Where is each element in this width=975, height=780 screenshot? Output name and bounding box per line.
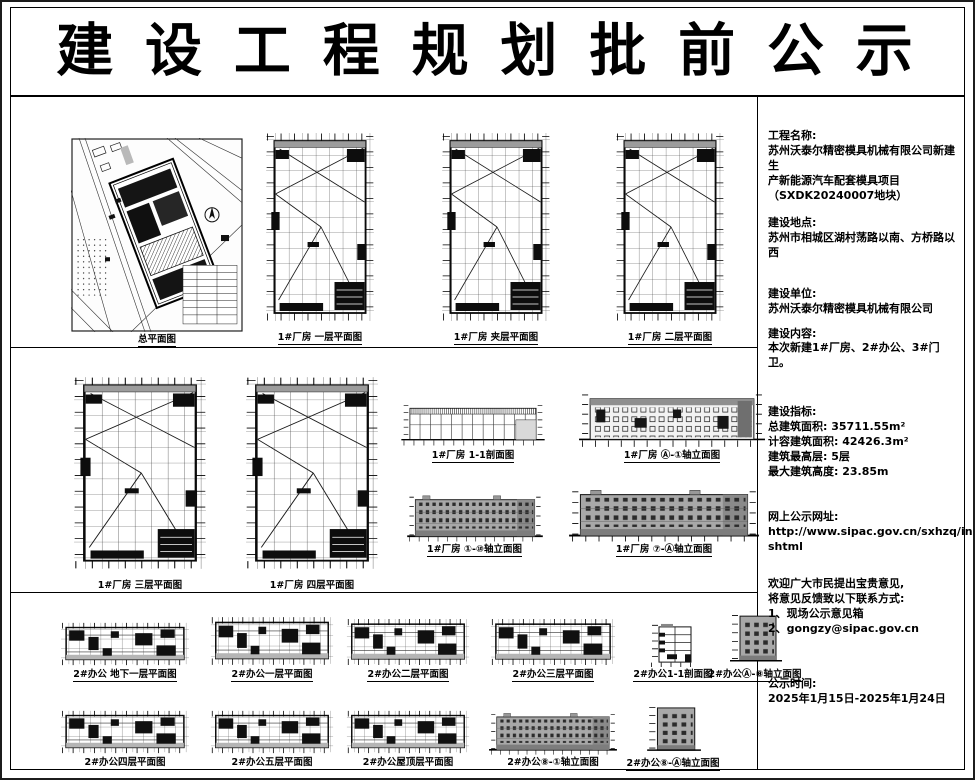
- floor-plan-graphic: [58, 708, 192, 755]
- drawing-office2-floor2-plan: 2#办公二层平面图: [342, 616, 474, 682]
- drawing-caption: 1#厂房 一层平面图: [278, 333, 362, 345]
- drawing-caption: 1#厂房 四层平面图: [270, 581, 354, 593]
- drawing-caption: 2#办公屋顶层平面图: [363, 758, 454, 770]
- info-heading: 建设地点:: [768, 216, 959, 231]
- drawing-caption: 1#厂房 二层平面图: [628, 333, 712, 345]
- drawing-caption: 2#办公1-1剖面图: [633, 670, 712, 682]
- floor-plan-graphic: [612, 124, 728, 330]
- drawing-office2-floor3-plan: 2#办公三层平面图: [486, 616, 620, 682]
- elevation-graphic: [576, 386, 768, 448]
- drawing-caption: 2#办公⑧-Ⓐ轴立面图: [626, 759, 719, 771]
- drawing-caption: 1#厂房 ⑦-Ⓐ轴立面图: [616, 545, 712, 557]
- title-band: 建 设 工 程 规 划 批 前 公 示: [10, 7, 965, 97]
- info-section-location: 建设地点: 苏州市相城区湖村荡路以南、方桥路以西: [768, 216, 959, 261]
- info-section-period: 公示时间: 2025年1月15日-2025年1月24日: [768, 677, 959, 707]
- floor-plan-graphic: [344, 708, 472, 755]
- floor-plan-graphic: [241, 368, 383, 578]
- drawing-caption: 2#办公三层平面图: [512, 670, 593, 682]
- drawing-factory1-elevation-1-10: 1#厂房 ①-⑩轴立面图: [402, 492, 547, 557]
- drawing-factory1-floor1-plan: 1#厂房 一层平面图: [258, 124, 382, 345]
- site-plan-graphic: [71, 138, 243, 332]
- drawing-caption: 总平面图: [138, 335, 176, 347]
- elevation-graphic: [643, 704, 703, 756]
- info-heading: 网上公示网址:: [768, 510, 959, 525]
- info-heading: 公示时间:: [768, 677, 959, 692]
- drawing-caption: 2#办公⑧-①轴立面图: [507, 758, 599, 770]
- drawing-office2-roof-plan: 2#办公屋顶层平面图: [342, 708, 474, 770]
- drawing-office2-floor1-plan: 2#办公一层平面图: [206, 614, 338, 682]
- info-section-project-name: 工程名称: 苏州沃泰尔精密模具机械有限公司新建生 产新能源汽车配套模具项目 （S…: [768, 129, 959, 204]
- section-graphic: [647, 622, 699, 667]
- info-body: 苏州沃泰尔精密模具机械有限公司新建生 产新能源汽车配套模具项目 （SXDK202…: [768, 144, 959, 204]
- drawing-factory1-floor4-plan: 1#厂房 四层平面图: [238, 368, 386, 593]
- info-section-feedback: 欢迎广大市民提出宝贵意见, 将意见反馈致以下联系方式: 1、现场公示意见箱 2、…: [768, 577, 959, 637]
- info-section-builder: 建设单位: 苏州沃泰尔精密模具机械有限公司: [768, 287, 959, 317]
- drawing-caption: 1#厂房 Ⓐ-①轴立面图: [624, 451, 720, 463]
- publicity-url: http://www.sipac.gov.cn/sxhzq/index. sht…: [768, 525, 959, 555]
- drawing-caption: 1#厂房 ①-⑩轴立面图: [427, 545, 522, 557]
- drawing-factory1-mezzanine-plan: 1#厂房 夹层平面图: [434, 124, 558, 345]
- info-body: 苏州市相城区湖村荡路以南、方桥路以西: [768, 231, 959, 261]
- elevation-graphic: [566, 486, 762, 542]
- drawing-office2-elevation-8-1: 2#办公⑧-①轴立面图: [486, 710, 620, 770]
- publicity-period: 2025年1月15日-2025年1月24日: [768, 692, 959, 707]
- drawing-office2-floor5-plan: 2#办公五层平面图: [206, 708, 338, 770]
- info-body: 总建筑面积: 35711.55m² 计容建筑面积: 42426.3m² 建筑最高…: [768, 420, 959, 480]
- info-heading: 欢迎广大市民提出宝贵意见,: [768, 577, 959, 592]
- info-section-content: 建设内容: 本次新建1#厂房、2#办公、3#门卫。: [768, 327, 959, 372]
- drawing-factory1-floor2-plan: 1#厂房 二层平面图: [608, 124, 732, 345]
- floor-plan-graphic: [344, 616, 472, 667]
- info-section-website: 网上公示网址: http://www.sipac.gov.cn/sxhzq/in…: [768, 510, 959, 555]
- info-body: 苏州沃泰尔精密模具机械有限公司: [768, 302, 959, 317]
- floor-plan-graphic: [208, 614, 336, 667]
- info-heading: 工程名称:: [768, 129, 959, 144]
- info-heading: 建设指标:: [768, 405, 959, 420]
- floor-plan-graphic: [208, 708, 336, 755]
- floor-plan-graphic: [69, 368, 211, 578]
- drawing-site-plan: 总平面图: [68, 138, 246, 347]
- drawing-caption: 1#厂房 三层平面图: [98, 581, 182, 593]
- drawing-factory1-section-1-1: 1#厂房 1-1剖面图: [398, 400, 548, 463]
- elevation-graphic: [405, 492, 545, 542]
- planning-notice-board: 建 设 工 程 规 划 批 前 公 示 总平面图 1#厂房 一层平面图 1#厂房…: [0, 0, 975, 780]
- drawing-office2-section-1-1: 2#办公1-1剖面图: [640, 622, 706, 682]
- drawing-caption: 2#办公二层平面图: [367, 670, 448, 682]
- floor-plan-graphic: [438, 124, 554, 330]
- drawing-caption: 2#办公五层平面图: [231, 758, 312, 770]
- drawing-office2-elevation-8-a: 2#办公⑧-Ⓐ轴立面图: [638, 704, 708, 771]
- section-graphic: [399, 400, 547, 448]
- drawing-office2-basement1-plan: 2#办公 地下一层平面图: [56, 620, 194, 682]
- drawing-caption: 2#办公 地下一层平面图: [73, 670, 176, 682]
- drawing-caption: 2#办公四层平面图: [84, 758, 165, 770]
- drawing-factory1-floor3-plan: 1#厂房 三层平面图: [66, 368, 214, 593]
- info-panel: 工程名称: 苏州沃泰尔精密模具机械有限公司新建生 产新能源汽车配套模具项目 （S…: [759, 95, 965, 770]
- drawing-caption: 1#厂房 夹层平面图: [454, 333, 538, 345]
- drawing-factory1-elevation-a-1: 1#厂房 Ⓐ-①轴立面图: [574, 386, 770, 463]
- floor-plan-graphic: [262, 124, 378, 330]
- drawing-factory1-elevation-7-a: 1#厂房 ⑦-Ⓐ轴立面图: [564, 486, 764, 557]
- page-title: 建 设 工 程 规 划 批 前 公 示: [56, 23, 919, 80]
- elevation-graphic: [487, 710, 619, 755]
- info-body: 本次新建1#厂房、2#办公、3#门卫。: [768, 341, 959, 371]
- drawing-caption: 1#厂房 1-1剖面图: [432, 451, 515, 463]
- drawing-caption: 2#办公一层平面图: [231, 670, 312, 682]
- info-heading: 建设单位:: [768, 287, 959, 302]
- floor-plan-graphic: [488, 616, 618, 667]
- floor-plan-graphic: [58, 620, 192, 667]
- info-heading: 建设内容:: [768, 327, 959, 342]
- drawing-office2-floor4-plan: 2#办公四层平面图: [56, 708, 194, 770]
- info-section-indicators: 建设指标: 总建筑面积: 35711.55m² 计容建筑面积: 42426.3m…: [768, 405, 959, 480]
- feedback-contacts: 将意见反馈致以下联系方式: 1、现场公示意见箱 2、gongzy@sipac.g…: [768, 592, 959, 637]
